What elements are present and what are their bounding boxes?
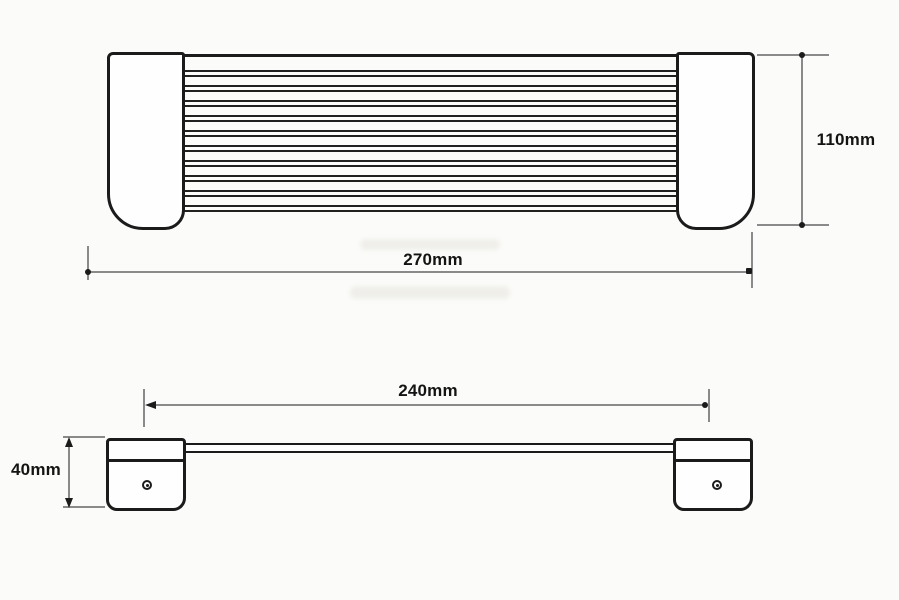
bracket-cap-seam [676, 459, 750, 462]
dim-240-line [150, 404, 706, 406]
shelf-slat [182, 190, 678, 197]
dim-40-line [68, 440, 70, 504]
dim-40-arrowhead-bottom [65, 498, 73, 508]
watermark-smudge [350, 286, 510, 299]
technical-drawing: 110mm 270mm 240mm 40mm [0, 0, 899, 600]
dim-270-endpoint-right-dot [746, 268, 752, 274]
screw-hole [142, 480, 152, 490]
shelf-slat [182, 160, 678, 167]
dim-110-endpoint-top-dot [799, 52, 805, 58]
dim-label-270mm: 270mm [392, 250, 474, 270]
dim-label-110mm: 110mm [808, 130, 884, 150]
bracket-cap-seam [109, 459, 183, 462]
dim-110-extension-top [757, 54, 829, 56]
shelf-slat [182, 145, 678, 152]
front-view-right-bracket [673, 438, 753, 511]
shelf-slat [182, 130, 678, 137]
shelf-slat [182, 115, 678, 122]
shelf-slat [182, 70, 678, 77]
dim-110-extension-bottom [757, 224, 829, 226]
dim-110-endpoint-bottom-dot [799, 222, 805, 228]
top-view-left-endcap [107, 52, 185, 230]
shelf-slat [182, 175, 678, 182]
top-view-slats [182, 54, 678, 217]
dim-40-arrowhead-top [65, 437, 73, 447]
top-view-right-endcap [676, 52, 755, 230]
dim-270-endpoint-left-dot [85, 269, 91, 275]
dim-240-extension-right [708, 389, 710, 422]
front-view-left-bracket [106, 438, 186, 511]
dim-label-240mm: 240mm [386, 381, 470, 401]
dim-270-extension-right [751, 232, 753, 288]
dim-240-endpoint-right-dot [702, 402, 708, 408]
dim-240-arrowhead-left [145, 401, 156, 409]
dim-label-40mm: 40mm [6, 460, 66, 480]
watermark-smudge [360, 239, 500, 250]
shelf-slat [182, 205, 678, 212]
shelf-slat [182, 85, 678, 92]
front-view-rail-bar [183, 443, 675, 453]
dim-110-line [801, 55, 803, 225]
screw-hole [712, 480, 722, 490]
shelf-slat [182, 100, 678, 107]
dim-270-line [88, 271, 752, 273]
